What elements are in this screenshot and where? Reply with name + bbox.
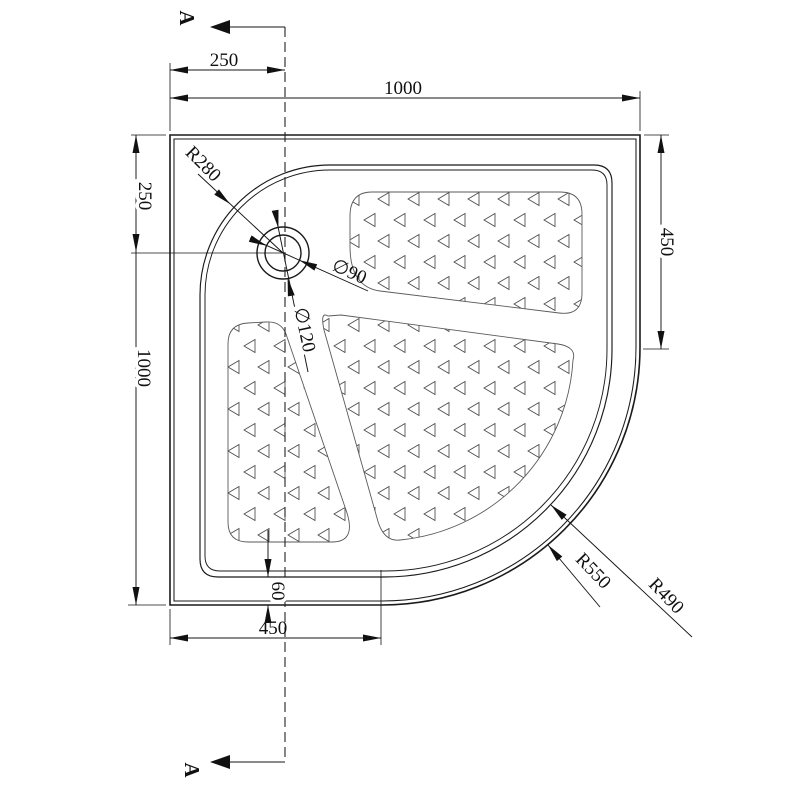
dim-right-straight: 450 [656, 135, 677, 349]
dim-drain-outer-diameter-label: ∅120 [289, 306, 319, 354]
section-label-top: A [175, 10, 199, 26]
dim-right-straight-label: 450 [656, 228, 677, 257]
section-marker-top: A [175, 10, 285, 34]
dim-top-width: 1000 [170, 78, 640, 102]
dim-inner-curve-radius-label: R490 [644, 574, 688, 618]
dim-left-stack: 250 1000 [133, 135, 156, 605]
dim-outer-curve-radius-label: R550 [571, 549, 615, 593]
dim-top-drain-offset-label: 250 [210, 50, 239, 71]
section-arrow-bottom [210, 755, 230, 769]
dim-left-drain-offset-label: 250 [134, 182, 155, 211]
dim-ledge-label: 60 [267, 582, 288, 601]
dim-bottom-straight-label: 450 [259, 618, 288, 639]
dim-top-width-label: 1000 [384, 78, 422, 99]
anti-slip-pad-top [350, 192, 582, 313]
section-arrow-top [210, 20, 230, 34]
dim-inner-curve-radius: R490 [551, 505, 692, 637]
section-label-bottom: A [180, 762, 204, 778]
dim-outer-curve-radius: R550 [548, 545, 615, 607]
dim-left-height-label: 1000 [133, 349, 154, 387]
section-marker-bottom: A [180, 755, 285, 778]
dim-bottom-straight: 450 [170, 618, 381, 642]
dim-top-drain-offset: 250 [170, 50, 285, 74]
shower-tray-drawing: A A 1000 250 250 [0, 0, 800, 800]
technical-drawing-canvas: A A 1000 250 250 [0, 0, 800, 800]
anti-slip-pad-center [323, 315, 574, 540]
dim-inner-corner-radius-label: R280 [181, 142, 225, 186]
